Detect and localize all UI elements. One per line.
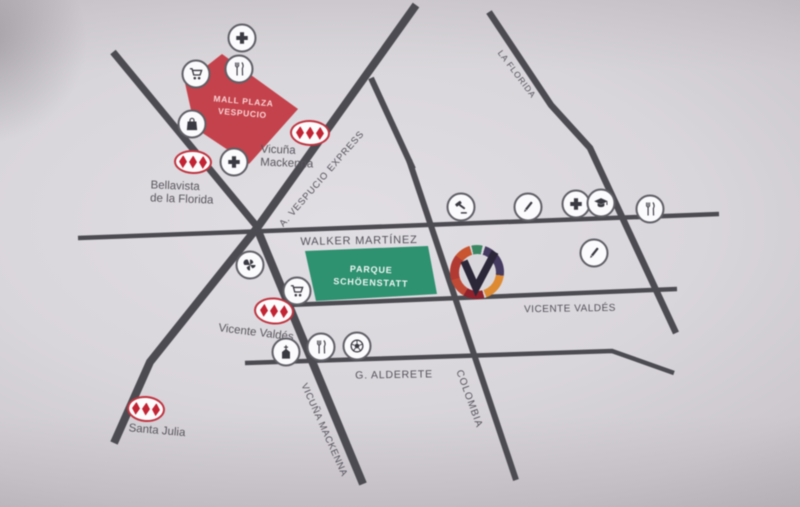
v-logo-checkmark [450, 245, 504, 299]
station-label-line2: Mackenna [260, 156, 313, 170]
metro-diamond [280, 305, 289, 319]
map-content: WALKER MARTÍNEZ VICENTE VALDÉS G. ALDERE… [0, 0, 800, 507]
hospital-icon [220, 148, 249, 177]
metro-diamond [306, 126, 314, 139]
restaurant-icon [307, 333, 336, 362]
metro-diamond [260, 304, 269, 318]
mall-plaza-vespucio-label: MALL PLAZA VESPUCIO [212, 92, 274, 121]
metro-diamond [270, 304, 279, 318]
school-icon [514, 193, 543, 222]
metro-diamond [189, 155, 197, 168]
metro-diamond [199, 156, 207, 169]
parque-schoenstatt-label: PARQUE SCHÖENSTATT [333, 262, 409, 290]
restaurant-icon [225, 55, 254, 84]
road-ramp [371, 78, 413, 169]
station-label-line1: Vicuña [260, 144, 313, 158]
courthouse-icon [447, 193, 476, 222]
metro-diamond [296, 126, 304, 139]
road-la-florida [489, 12, 676, 333]
hospital-icon [228, 24, 257, 53]
restaurant-icon [636, 195, 665, 224]
supermarket-icon [283, 277, 312, 306]
metro-diamond [152, 403, 161, 417]
street-label-g-alderete: G. ALDERETE [355, 368, 433, 381]
school-icon [580, 239, 609, 268]
park-label-line2: SCHÖENSTATT [333, 275, 408, 290]
church-icon [272, 338, 301, 367]
metro-diamond [142, 402, 151, 416]
road-network-svg [0, 0, 800, 507]
street-label-walker-martinez: WALKER MARTÍNEZ [300, 234, 417, 248]
map-photo: WALKER MARTÍNEZ VICENTE VALDÉS G. ALDERE… [0, 0, 800, 507]
station-label-line2: de la Florida [150, 192, 214, 207]
metro-diamond [179, 155, 187, 168]
metro-diamond [132, 402, 141, 416]
pinwheel-landmark-icon [236, 251, 265, 280]
shopping-bag-icon [178, 110, 207, 139]
metro-station-label-vicuna-mackenna: Vicuña Mackenna [260, 144, 314, 171]
university-icon [587, 189, 616, 218]
street-label-vicente-valdes: VICENTE VALDÉS [524, 303, 616, 316]
supermarket-icon [182, 60, 211, 89]
metro-diamond [316, 127, 324, 140]
stadium-icon [343, 332, 372, 361]
metro-station-label-bellavista: Bellavista de la Florida [150, 179, 214, 206]
v-logo [450, 245, 504, 299]
